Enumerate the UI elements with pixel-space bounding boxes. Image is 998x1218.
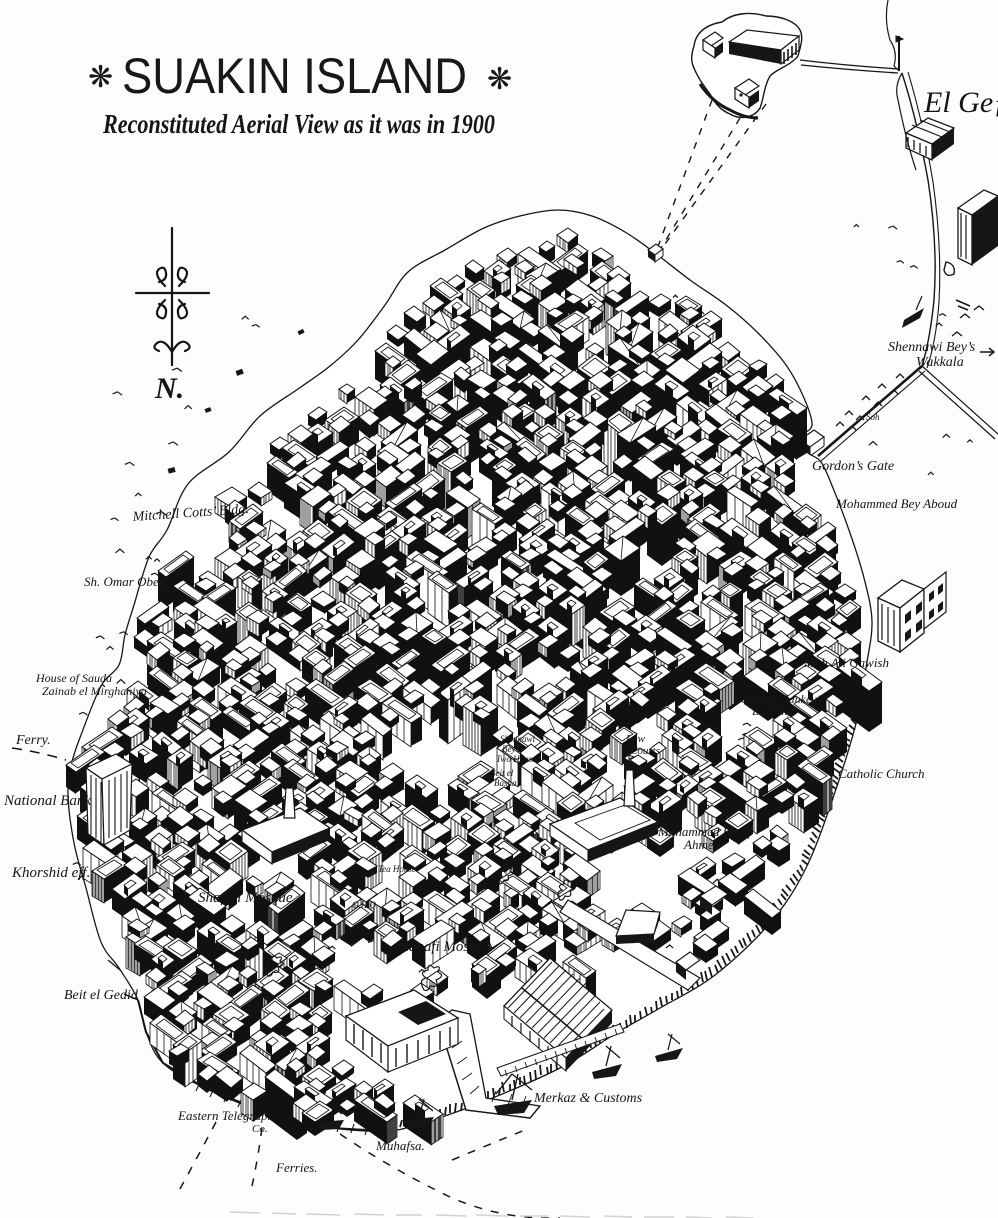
svg-text:Shennawi Bey’s: Shennawi Bey’s <box>888 340 976 355</box>
svg-text:Bey’s: Bey’s <box>502 744 521 754</box>
svg-text:Building: Building <box>752 704 793 718</box>
svg-text:Ahmed: Ahmed <box>683 837 721 852</box>
svg-text:Suk: Suk <box>392 782 406 792</box>
svg-text:Moh Ali Gawish: Moh Ali Gawish <box>803 655 889 670</box>
svg-text:Ferries.: Ferries. <box>275 1160 318 1175</box>
svg-text:N.: N. <box>154 372 184 405</box>
svg-text:Beit el Gedid: Beit el Gedid <box>64 988 139 1003</box>
svg-text:Merkaz & Customs: Merkaz & Customs <box>533 1091 643 1106</box>
svg-text:Beit el: Beit el <box>490 768 514 778</box>
svg-text:Reconstituted Aerial View as: Reconstituted Aerial View as it was in 1… <box>102 109 495 139</box>
svg-text:Tea House: Tea House <box>378 864 416 874</box>
svg-text:National Bank: National Bank <box>3 793 91 809</box>
svg-text:Wakkala: Wakkala <box>916 355 964 370</box>
svg-text:G.H.Q.: G.H.Q. <box>352 900 378 910</box>
svg-text:House of Sauda: House of Sauda <box>35 671 112 685</box>
svg-text:Mohammed Bey Aboud: Mohammed Bey Aboud <box>835 496 958 511</box>
svg-text:SUAKIN ISLAND: SUAKIN ISLAND <box>122 48 467 104</box>
svg-text:Co.: Co. <box>252 1123 268 1135</box>
svg-text:❋: ❋ <box>487 63 512 96</box>
svg-text:Catholic Church: Catholic Church <box>838 766 925 781</box>
svg-text:Ferry.: Ferry. <box>15 733 51 748</box>
svg-text:Soh: Soh <box>866 412 880 422</box>
svg-text:Zainab el Mirghaniya: Zainab el Mirghaniya <box>42 684 147 698</box>
svg-text:Gordon’s Gate: Gordon’s Gate <box>812 459 894 474</box>
svg-text:Hanafi Mosque: Hanafi Mosque <box>397 939 491 955</box>
svg-text:Shafa’i Mosque: Shafa’i Mosque <box>198 890 293 906</box>
svg-text:Two Houses: Two Houses <box>496 754 540 764</box>
svg-text:Basha: Basha <box>494 778 517 788</box>
svg-text:Muhafsa.: Muhafsa. <box>375 1138 425 1153</box>
svg-text:Sh. Omar Obeid: Sh. Omar Obeid <box>84 574 169 589</box>
svg-text:El Geƒ: El Geƒ <box>923 86 998 119</box>
svg-text:Courts: Courts <box>630 745 660 757</box>
svg-text:Eastern Telegraph: Eastern Telegraph <box>177 1108 274 1123</box>
svg-text:Khorshid eff.: Khorshid eff. <box>11 865 90 881</box>
svg-text:❋: ❋ <box>88 61 113 94</box>
svg-text:Law: Law <box>625 733 646 745</box>
svg-text:Shennawi: Shennawi <box>500 734 535 744</box>
